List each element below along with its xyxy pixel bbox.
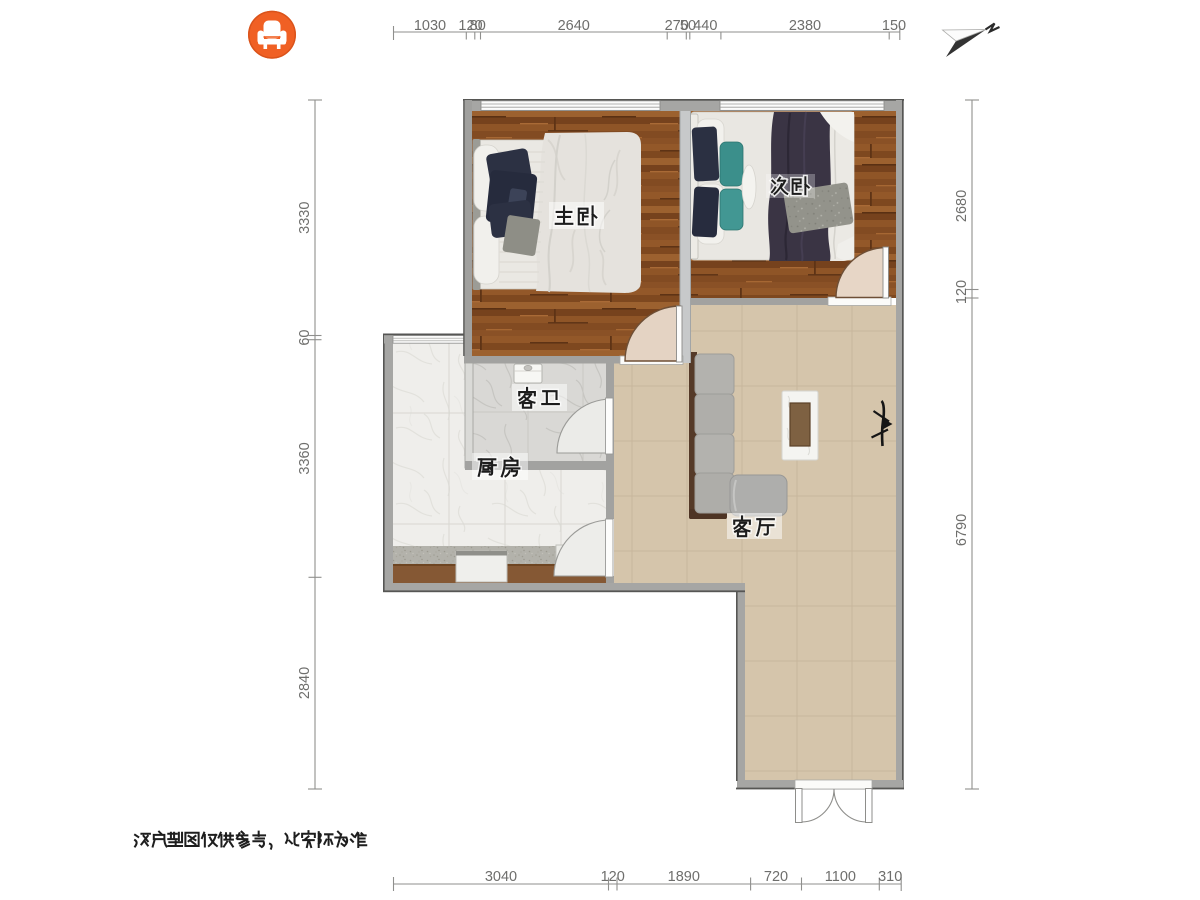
svg-text:720: 720 <box>764 869 788 885</box>
svg-text:3040: 3040 <box>485 869 517 885</box>
svg-text:1100: 1100 <box>825 869 856 885</box>
svg-text:80: 80 <box>470 18 486 34</box>
svg-text:2840: 2840 <box>297 667 313 699</box>
svg-text:3330: 3330 <box>297 202 313 234</box>
svg-text:2640: 2640 <box>558 18 590 34</box>
svg-text:60: 60 <box>297 330 313 346</box>
svg-text:310: 310 <box>878 869 902 885</box>
svg-text:1890: 1890 <box>668 869 700 885</box>
svg-text:120: 120 <box>954 280 970 304</box>
svg-text:3360: 3360 <box>297 442 313 474</box>
svg-text:2380: 2380 <box>789 18 821 34</box>
svg-text:6790: 6790 <box>954 514 970 546</box>
svg-text:120: 120 <box>601 869 625 885</box>
svg-text:440: 440 <box>693 18 717 34</box>
svg-text:150: 150 <box>882 18 906 34</box>
svg-text:2680: 2680 <box>954 190 970 222</box>
svg-text:1030: 1030 <box>414 18 446 34</box>
